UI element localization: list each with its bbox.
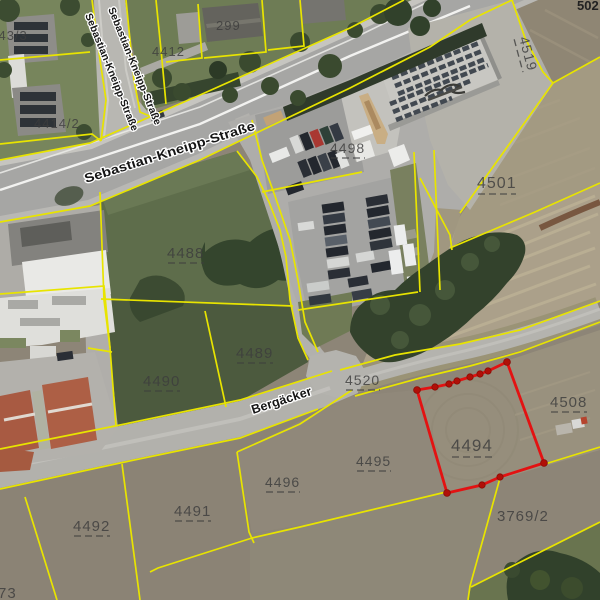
svg-text:73: 73 — [0, 585, 17, 600]
svg-text:3769/2: 3769/2 — [497, 508, 549, 525]
svg-text:4508: 4508 — [550, 394, 587, 411]
svg-text:4412: 4412 — [152, 44, 185, 59]
svg-text:4520: 4520 — [345, 372, 380, 388]
svg-text:299: 299 — [216, 18, 241, 33]
svg-text:4488: 4488 — [167, 245, 204, 262]
svg-text:4501: 4501 — [477, 175, 517, 192]
svg-text:4494: 4494 — [451, 436, 493, 455]
svg-text:4498: 4498 — [330, 140, 365, 156]
svg-text:4490: 4490 — [143, 373, 180, 390]
svg-text:4414/2: 4414/2 — [34, 116, 80, 131]
svg-text:4496: 4496 — [265, 474, 300, 490]
svg-text:4492: 4492 — [73, 518, 110, 535]
svg-text:4443/3: 4443/3 — [0, 28, 28, 43]
svg-text:4491: 4491 — [174, 503, 211, 520]
svg-text:502: 502 — [577, 0, 599, 13]
svg-text:4489: 4489 — [236, 345, 273, 362]
svg-text:4495: 4495 — [356, 453, 391, 469]
